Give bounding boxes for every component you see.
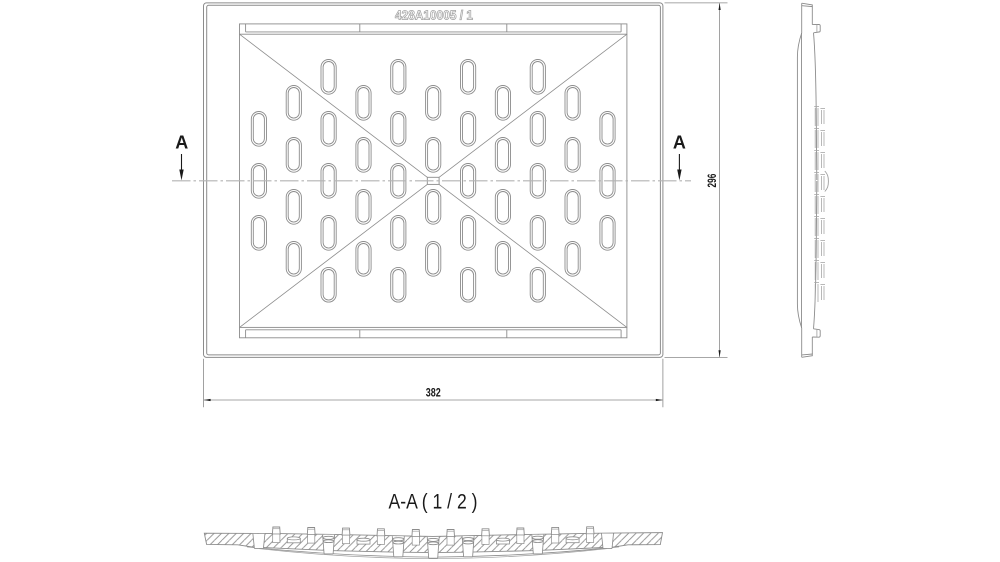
svg-text:A: A	[673, 132, 686, 152]
svg-text:A: A	[175, 132, 188, 152]
svg-text:296: 296	[707, 174, 719, 188]
svg-text:382: 382	[426, 387, 441, 399]
svg-text:428A10005 / 1: 428A10005 / 1	[395, 9, 473, 23]
svg-text:A-A ( 1 / 2 ): A-A ( 1 / 2 )	[389, 490, 478, 514]
